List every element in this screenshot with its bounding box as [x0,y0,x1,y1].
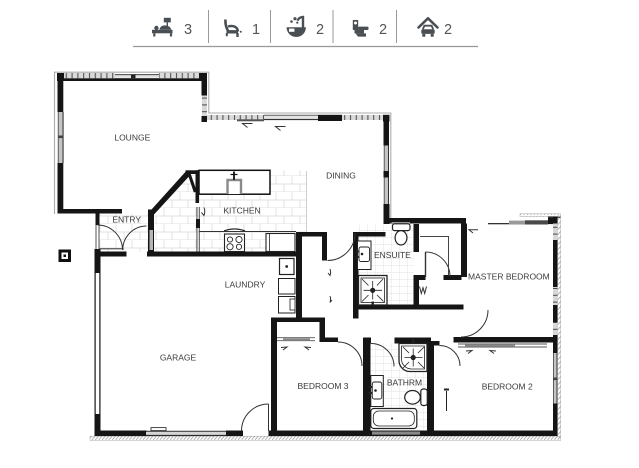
svg-text:1: 1 [252,22,260,38]
svg-text:BATHRM: BATHRM [387,378,422,388]
svg-text:ENTRY: ENTRY [112,215,141,225]
svg-text:GARAGE: GARAGE [160,353,197,363]
svg-text:MASTER BEDROOM: MASTER BEDROOM [468,272,550,282]
svg-text:KITCHEN: KITCHEN [223,206,260,216]
svg-text:BEDROOM 2: BEDROOM 2 [482,382,533,392]
svg-text:LAUNDRY: LAUNDRY [225,280,266,290]
svg-text:3: 3 [184,22,192,38]
svg-text:LOUNGE: LOUNGE [114,133,150,143]
svg-text:DINING: DINING [326,170,356,180]
svg-text:ENSUITE: ENSUITE [374,250,411,260]
svg-text:2: 2 [316,22,324,38]
svg-text:2: 2 [379,22,387,38]
svg-text:BEDROOM 3: BEDROOM 3 [297,381,348,391]
svg-text:2: 2 [444,22,452,38]
